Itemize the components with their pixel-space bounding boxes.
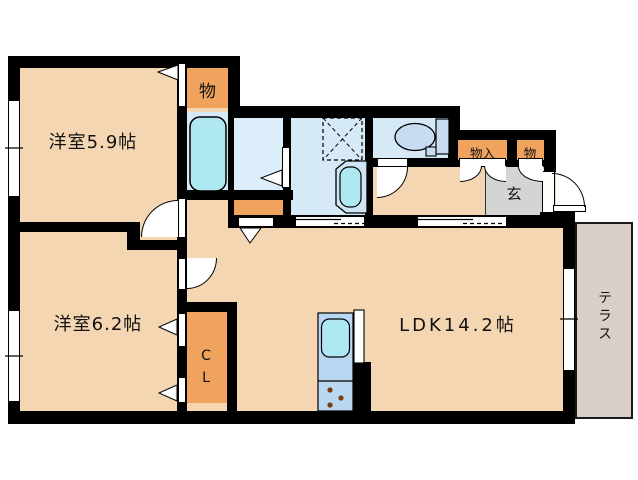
window-room2 — [8, 310, 20, 402]
closet-door-panel — [178, 313, 186, 347]
wall — [228, 112, 234, 200]
wall — [365, 112, 373, 216]
room1-label: 洋室5.9帖 — [38, 128, 148, 154]
entry-door-swing — [552, 173, 585, 207]
storage-right-label: 物 — [516, 143, 544, 162]
room2-label: 洋室6.2帖 — [42, 310, 154, 336]
terrace-label: テラス — [594, 272, 614, 362]
closet-door-panel — [178, 377, 186, 403]
storage-top-label: 物 — [187, 77, 228, 102]
wall — [228, 106, 460, 118]
hall-storage-door — [238, 217, 274, 227]
room2-door-leaf — [178, 258, 186, 290]
room1-door-leaf — [178, 198, 186, 238]
floor-plan: 洋室5.9帖 洋室6.2帖 LDK14.2帖 物 物入 物 玄 CL テラス — [0, 0, 638, 480]
window-room1 — [8, 100, 20, 197]
wall — [8, 411, 575, 424]
wall — [8, 56, 240, 68]
storage-top-door — [178, 63, 186, 107]
genkan-label: 玄 — [495, 183, 533, 204]
bath-door-leaf — [282, 147, 290, 188]
closet-frame — [227, 302, 237, 411]
toilet-room-floor — [373, 112, 448, 158]
ldk-label: LDK14.2帖 — [383, 311, 533, 337]
toilet-door-leaf — [377, 158, 408, 167]
wall — [127, 240, 187, 250]
bath-room-floor — [187, 112, 230, 200]
closet-label: CL — [198, 340, 214, 400]
bath-entry-floor — [232, 112, 285, 200]
wall — [8, 222, 140, 232]
storage-in-label: 物入 — [458, 143, 507, 162]
wall — [228, 215, 575, 228]
window-ldk — [563, 268, 575, 371]
wall — [177, 190, 293, 200]
washroom-sliding-door — [295, 216, 365, 227]
washroom-floor — [291, 112, 365, 215]
ldk-sliding-door — [417, 216, 507, 227]
